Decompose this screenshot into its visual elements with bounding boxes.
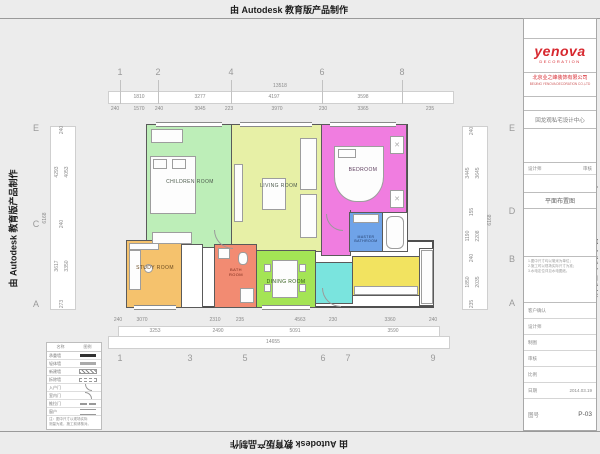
bookshelf <box>129 243 159 250</box>
dim: 3590 <box>387 328 398 334</box>
dim: 2310 <box>209 317 220 323</box>
washbasin <box>218 248 230 259</box>
dim: 3598 <box>357 94 368 100</box>
grid-tick <box>322 80 323 104</box>
dim: 230 <box>329 317 337 323</box>
dim: 240 <box>469 127 475 135</box>
tb-date-row: 日期 2014.03.19 <box>524 383 596 399</box>
label-living-room: LIVING ROOM <box>260 183 298 189</box>
legend-name: 入户门 <box>47 385 75 391</box>
date-label: 日期 <box>528 388 537 394</box>
grid-tick <box>158 80 159 104</box>
dim-top-total: 13518 <box>273 83 287 89</box>
sheet-number: P-03 <box>578 411 592 418</box>
grid-bottom-1: 1 <box>117 353 122 363</box>
field-label: 制图 <box>528 340 537 346</box>
tb-empty-cell <box>524 129 596 163</box>
tv-cabinet <box>234 164 243 222</box>
label-dining-room: DINING ROOM <box>267 279 306 285</box>
dim: 235 <box>469 300 475 308</box>
tb-project-cell: 回龙观私宅设计中心 <box>524 111 596 129</box>
legend-row: 轻体墙 <box>47 360 101 368</box>
tb-drawing-name-cell: 平面布置图 <box>524 193 596 209</box>
legend-row: 室内门 <box>47 392 101 400</box>
frame-top-line <box>0 18 600 19</box>
dim-bar-left <box>50 126 76 310</box>
legend-swatch-door <box>75 392 101 399</box>
grid-bottom-3: 3 <box>187 353 192 363</box>
chair <box>264 284 271 292</box>
window <box>156 122 222 127</box>
dim: 3350 <box>64 260 70 271</box>
dim: 2490 <box>212 328 223 334</box>
legend-header: 名称 图例 <box>47 343 101 352</box>
dim: 4563 <box>294 317 305 323</box>
chair <box>264 264 271 272</box>
dim: 240 <box>429 317 437 323</box>
legend-swatch-sliding-door <box>75 403 101 405</box>
frame-bottom-line <box>0 431 600 432</box>
dim: 273 <box>59 300 65 308</box>
watermark-bottom: 由 Autodesk 教育版产品制作 <box>230 438 348 451</box>
dim: 240 <box>111 106 119 112</box>
watermark-top: 由 Autodesk 教育版产品制作 <box>230 3 348 16</box>
sheet-label: 图号 <box>528 411 539 419</box>
grid-left-E: E <box>33 123 39 133</box>
tb-spacer-cell <box>524 97 596 111</box>
pillow <box>172 159 186 169</box>
grid-tick <box>402 80 403 104</box>
dim: 240 <box>469 254 475 262</box>
legend-name: 窗户 <box>47 409 75 415</box>
dim: 2035 <box>475 276 481 287</box>
grid-bottom-7: 7 <box>345 353 350 363</box>
field-label: 审核 <box>528 356 537 362</box>
legend-header-symbol: 图例 <box>74 344 101 350</box>
dim: 6168 <box>42 212 48 223</box>
dim: 3045 <box>194 106 205 112</box>
toilet <box>238 252 248 265</box>
dim: 2208 <box>475 230 481 241</box>
dim: 230 <box>319 106 327 112</box>
legend-row: 承重墙 <box>47 352 101 360</box>
date-value: 2014.03.19 <box>569 388 592 393</box>
company-name: 北京业之峰装饰有限公司 <box>524 75 596 82</box>
grid-left-A: A <box>33 299 39 309</box>
grid-top-6: 6 <box>319 67 324 77</box>
legend-row: 窗户 <box>47 408 101 416</box>
grid-top-8: 8 <box>399 67 404 77</box>
window <box>262 305 310 310</box>
dim: 3617 <box>54 260 60 271</box>
label-master-bathroom: MASTER BATHROOM <box>353 235 379 243</box>
closet-icon: ✕ <box>390 136 404 154</box>
drawing-name: 平面布置图 <box>545 196 575 205</box>
cad-sheet: 由 Autodesk 教育版产品制作 由 Autodesk 教育版产品制作 由 … <box>0 0 600 454</box>
chair <box>299 284 306 292</box>
dim: 3360 <box>384 317 395 323</box>
company-name-en: BEIJING YENOVA DECORATION CO.,LTD <box>528 82 593 86</box>
dim: 3253 <box>149 328 160 334</box>
legend-swatch-hatch <box>75 369 101 374</box>
sofa <box>300 194 317 238</box>
shower <box>240 288 254 303</box>
grid-bottom-5: 5 <box>242 353 247 363</box>
window <box>134 305 176 310</box>
dim-bottom-total: 14655 <box>266 339 280 345</box>
tb-company-cell: 北京业之峰装饰有限公司 BEIJING YENOVA DECORATION CO… <box>524 73 596 97</box>
dim: 3645 <box>475 167 481 178</box>
legend-name: 轻体墙 <box>47 361 75 367</box>
bathtub <box>386 216 404 249</box>
grid-right-E: E <box>509 123 515 133</box>
label-bedroom: BEDROOM <box>349 167 378 173</box>
legend-name: 室内门 <box>47 393 75 399</box>
dim: 235 <box>426 106 434 112</box>
wardrobe-column <box>181 244 203 308</box>
grid-right-A: A <box>509 298 515 308</box>
dim: 240 <box>155 106 163 112</box>
field-label: 比例 <box>528 372 537 378</box>
dim: 1570 <box>133 106 144 112</box>
tb-sheet-row: 图号 P-03 <box>524 399 596 430</box>
tb-field-row: 审核 <box>524 351 596 367</box>
legend-note: 注：图中尺寸以现场实际 测量为准，施工前请核对。 <box>47 416 101 427</box>
designer-label: 设计师 <box>528 166 542 172</box>
tb-field-row: 设计师 <box>524 319 596 335</box>
legend-header-name: 名称 <box>47 344 74 350</box>
legend-row: 推拉门 <box>47 400 101 408</box>
dim: 155 <box>469 208 475 216</box>
legend-name: 承重墙 <box>47 353 75 359</box>
legend-swatch-light <box>75 362 101 365</box>
dim: 3070 <box>136 317 147 323</box>
legend-row: 入户门 <box>47 384 101 392</box>
tb-top-cell <box>524 19 596 39</box>
legend-row: 拆除墙 <box>47 376 101 384</box>
dim: 235 <box>236 317 244 323</box>
yenova-logo-sub: DECORATION <box>524 59 596 64</box>
legend-table: 名称 图例 承重墙 轻体墙 新建墙 拆除墙 入户门 室内门 推拉门 <box>46 342 102 430</box>
label-children-room: CHILDREN ROOM <box>166 179 214 185</box>
closet-icon: ✕ <box>390 190 404 208</box>
tb-logo-cell: yenova DECORATION <box>524 39 596 73</box>
legend-name: 推拉门 <box>47 401 75 407</box>
legend-name: 拆除墙 <box>47 377 75 383</box>
dim: 223 <box>225 106 233 112</box>
title-block: yenova DECORATION 北京业之峰装饰有限公司 BEIJING YE… <box>523 18 597 431</box>
dim: 6168 <box>487 214 493 225</box>
tb-note-line: 3.水电定位详见水电图纸。 <box>528 269 592 274</box>
dim: 3365 <box>357 106 368 112</box>
dim: 1850 <box>465 276 471 287</box>
grid-left-C: C <box>33 219 40 229</box>
project-name: 回龙观私宅设计中心 <box>535 116 585 124</box>
dim: 1810 <box>133 94 144 100</box>
dim: 4197 <box>268 94 279 100</box>
legend-swatch-dashed <box>75 378 101 382</box>
grid-top-2: 2 <box>155 67 160 77</box>
watermark-left: 由 Autodesk 教育版产品制作 <box>7 164 20 294</box>
grid-bottom-6: 6 <box>320 353 325 363</box>
dim: 1190 <box>465 231 471 242</box>
dim: 3277 <box>194 94 205 100</box>
fridge-cabinet <box>421 250 433 304</box>
legend-note-line2: 测量为准，施工前请核对。 <box>49 422 99 427</box>
window <box>330 122 396 127</box>
legend-name: 新建墙 <box>47 369 75 375</box>
chair <box>299 264 306 272</box>
tb-empty-cell <box>524 209 596 257</box>
legend-row: 新建墙 <box>47 368 101 376</box>
sofa <box>300 138 317 190</box>
field-label: 客户确认 <box>528 308 546 314</box>
dim: 240 <box>114 317 122 323</box>
dim: 5091 <box>289 328 300 334</box>
grid-right-D: D <box>509 206 516 216</box>
dim: 3970 <box>271 106 282 112</box>
grid-tick <box>231 80 232 104</box>
tb-field-row: 制图 <box>524 335 596 351</box>
tb-notes: 1.图中尺寸均以毫米为单位； 2.施工时以现场实际尺寸为准； 3.水电定位详见水… <box>524 257 596 276</box>
field-label: 设计师 <box>528 324 542 330</box>
dim: 4053 <box>64 166 70 177</box>
kitchen-counter <box>354 286 418 295</box>
tb-note-cell: 1.图中尺寸均以毫米为单位； 2.施工时以现场实际尺寸为准； 3.水电定位详见水… <box>524 257 596 303</box>
dim: 240 <box>59 126 65 134</box>
dim: 240 <box>59 220 65 228</box>
vanity <box>353 214 379 223</box>
dim: 3445 <box>465 167 471 178</box>
legend-swatch-window <box>75 409 101 415</box>
grid-top-1: 1 <box>117 67 122 77</box>
label-study-room: STUDY ROOM <box>136 265 174 271</box>
pillow <box>153 159 167 169</box>
legend-swatch-solid <box>75 354 101 357</box>
grid-bottom-9: 9 <box>430 353 435 363</box>
window <box>240 122 312 127</box>
wardrobe <box>151 129 183 143</box>
label-bath-room: BATH ROOM <box>226 267 246 277</box>
pillow <box>338 149 356 158</box>
check-label: 审核 <box>583 166 592 172</box>
grid-right-B: B <box>509 254 515 264</box>
tb-designer-row: 设计师 审核 <box>524 163 596 175</box>
tb-field-row: 比例 <box>524 367 596 383</box>
tb-field-row: 客户确认 <box>524 303 596 319</box>
dim: 4293 <box>54 166 60 177</box>
legend-swatch-entry-door <box>75 384 101 391</box>
yenova-logo: yenova <box>524 43 596 59</box>
tb-empty-cell <box>524 175 596 193</box>
grid-tick <box>120 80 121 104</box>
grid-top-4: 4 <box>228 67 233 77</box>
